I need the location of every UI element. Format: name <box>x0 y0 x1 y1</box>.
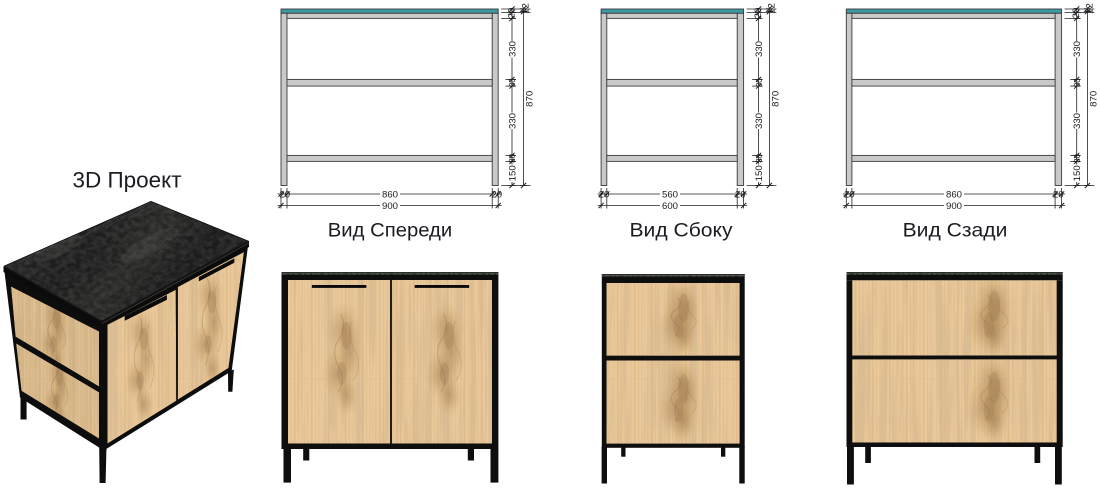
svg-text:20: 20 <box>599 189 610 200</box>
svg-text:12: 12 <box>1084 3 1095 14</box>
svg-text:20: 20 <box>506 8 517 19</box>
svg-text:330: 330 <box>507 41 518 57</box>
svg-text:20: 20 <box>1071 8 1082 19</box>
svg-text:30: 30 <box>508 153 517 162</box>
svg-text:870: 870 <box>770 91 781 107</box>
svg-text:Вид Сбоку: Вид Сбоку <box>630 220 733 242</box>
svg-text:150: 150 <box>754 165 765 181</box>
svg-text:860: 860 <box>946 189 962 200</box>
svg-text:600: 600 <box>662 201 678 212</box>
svg-text:20: 20 <box>844 189 855 200</box>
svg-text:900: 900 <box>382 201 398 212</box>
svg-text:330: 330 <box>507 113 518 129</box>
svg-text:870: 870 <box>1088 91 1099 107</box>
svg-text:560: 560 <box>662 189 678 200</box>
svg-text:330: 330 <box>1072 41 1083 57</box>
svg-text:30: 30 <box>508 78 517 87</box>
svg-text:30: 30 <box>755 78 764 87</box>
svg-text:30: 30 <box>755 153 764 162</box>
svg-text:30: 30 <box>1073 78 1082 87</box>
svg-text:20: 20 <box>1053 189 1064 200</box>
svg-text:12: 12 <box>766 3 777 14</box>
svg-text:150: 150 <box>507 165 518 181</box>
svg-text:20: 20 <box>735 189 746 200</box>
svg-text:12: 12 <box>521 3 532 14</box>
svg-text:Вид Сзади: Вид Сзади <box>903 220 1008 242</box>
svg-text:20: 20 <box>753 8 764 19</box>
svg-text:20: 20 <box>279 189 290 200</box>
svg-text:870: 870 <box>525 91 536 107</box>
svg-text:860: 860 <box>382 189 398 200</box>
svg-text:330: 330 <box>754 41 765 57</box>
svg-text:3D Проект: 3D Проект <box>73 168 182 193</box>
svg-text:20: 20 <box>491 189 502 200</box>
svg-text:900: 900 <box>946 201 962 212</box>
svg-text:Вид Спереди: Вид Спереди <box>328 220 452 242</box>
svg-text:330: 330 <box>754 113 765 129</box>
svg-text:150: 150 <box>1072 165 1083 181</box>
svg-text:30: 30 <box>1073 153 1082 162</box>
svg-text:330: 330 <box>1072 113 1083 129</box>
